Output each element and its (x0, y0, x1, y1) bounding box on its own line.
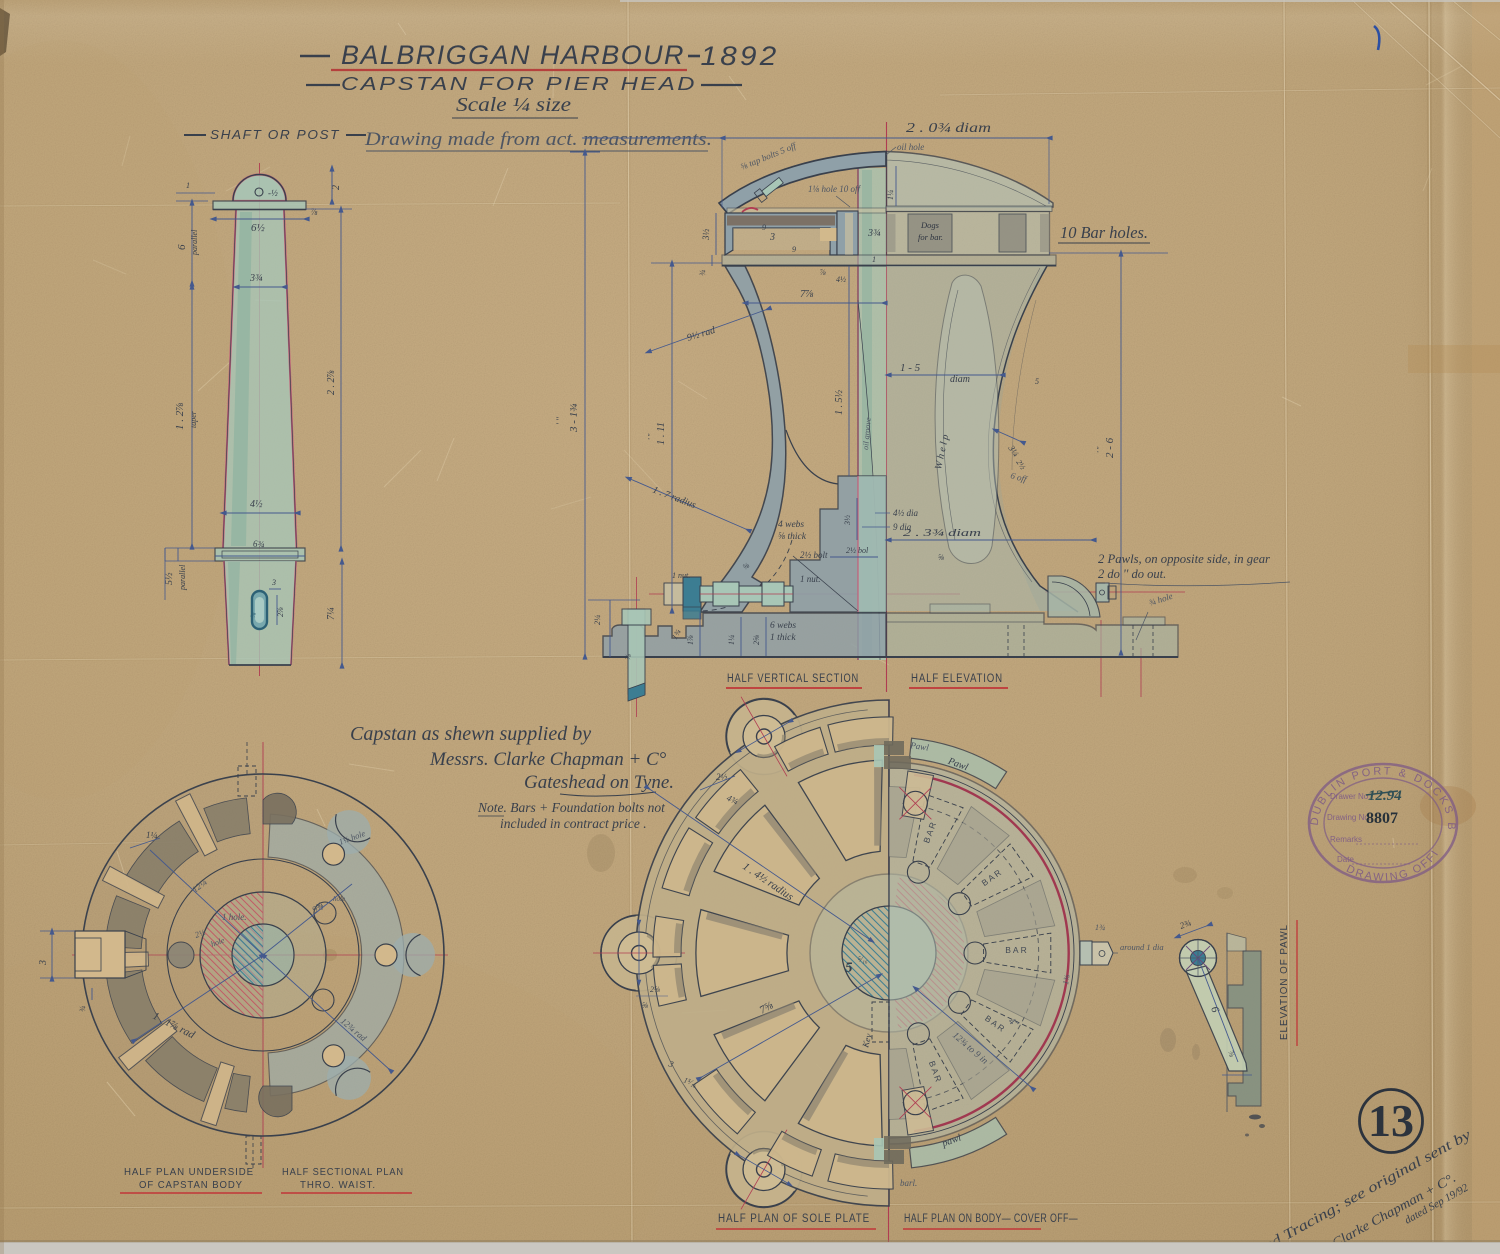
svg-text:Capstan as shewn supplied by: Capstan as shewn supplied by (350, 723, 591, 745)
svg-text:HALF VERTICAL SECTION: HALF VERTICAL SECTION (727, 673, 859, 685)
svg-text:1: 1 (872, 255, 876, 264)
svg-text:¾: ¾ (78, 1006, 87, 1012)
svg-text:1: 1 (186, 181, 190, 190)
svg-text:THRO. WAIST.: THRO. WAIST. (300, 1179, 376, 1191)
svg-text:OF CAPSTAN BODY: OF CAPSTAN BODY (139, 1179, 243, 1191)
svg-text:10 Bar holes.: 10 Bar holes. (1060, 223, 1148, 242)
svg-text:2 . 3¾ diam: 2 . 3¾ diam (903, 527, 981, 539)
svg-text:for bar.: for bar. (918, 232, 943, 242)
svg-text:Scale ¼ size: Scale ¼ size (456, 94, 571, 116)
svg-text:9: 9 (792, 245, 796, 254)
svg-text:6: 6 (176, 244, 188, 250)
svg-text:1¼: 1¼ (146, 830, 158, 840)
svg-text:3¾: 3¾ (867, 228, 881, 239)
svg-text:5½: 5½ (164, 572, 175, 585)
svg-text:8807: 8807 (1366, 810, 1398, 827)
svg-text:3: 3 (38, 960, 49, 966)
svg-text:⅞: ⅞ (311, 207, 318, 217)
svg-text:Remarks: Remarks (1330, 835, 1362, 844)
svg-text:⅝ thick: ⅝ thick (778, 532, 807, 542)
svg-text:4½: 4½ (836, 275, 846, 284)
svg-text:1 . 5½: 1 . 5½ (834, 390, 845, 416)
svg-text:around 1 dia: around 1 dia (1120, 942, 1164, 952)
svg-text:2⅞: 2⅞ (276, 607, 285, 617)
svg-text:SHAFT OR POST: SHAFT OR POST (210, 127, 340, 142)
svg-text:Dogs: Dogs (920, 220, 940, 230)
svg-text:Drawer No.: Drawer No. (1330, 792, 1370, 801)
svg-text:1⅜: 1⅜ (1061, 974, 1072, 985)
svg-text:4½: 4½ (250, 499, 263, 510)
svg-text:2½ bolt: 2½ bolt (800, 550, 828, 560)
svg-text:Date: Date (1337, 855, 1354, 864)
svg-text:4 webs: 4 webs (778, 520, 804, 530)
svg-text:2 . 2⅞: 2 . 2⅞ (326, 370, 337, 395)
svg-text:2: 2 (331, 185, 342, 190)
svg-text:1 . 11: 1 . 11 (656, 422, 667, 445)
svg-text:⅝: ⅝ (642, 1001, 648, 1010)
svg-text:oil hole: oil hole (897, 142, 924, 152)
svg-text:HALF SECTIONAL PLAN: HALF SECTIONAL PLAN (282, 1166, 404, 1178)
svg-text:1 thick: 1 thick (770, 633, 796, 643)
svg-text:4½ dia: 4½ dia (893, 508, 919, 518)
svg-text:parallel: parallel (190, 229, 199, 256)
svg-text:ELEVATION OF PAWL: ELEVATION OF PAWL (1279, 924, 1290, 1040)
svg-text:3¾: 3¾ (249, 273, 263, 284)
svg-text:⅞: ⅞ (820, 268, 826, 277)
svg-text:3: 3 (271, 578, 276, 587)
svg-text:⅝: ⅝ (938, 553, 944, 562)
svg-text:parallel: parallel (178, 564, 187, 591)
svg-text:3½: 3½ (843, 515, 852, 526)
svg-text:1 nut.: 1 nut. (672, 571, 690, 580)
svg-text:BAR: BAR (1005, 945, 1028, 955)
svg-text:2 Pawls, on opposite side, in: 2 Pawls, on opposite side, in gear (1098, 552, 1270, 566)
svg-text:hole: hole (333, 895, 345, 903)
svg-text:BALBRIGGAN HARBOUR: BALBRIGGAN HARBOUR (341, 40, 685, 70)
svg-text:7⅞: 7⅞ (800, 288, 814, 300)
svg-text:1 - 5: 1 - 5 (900, 362, 921, 374)
svg-text:2⅝: 2⅝ (650, 985, 660, 994)
svg-text:1¼: 1¼ (886, 190, 895, 200)
svg-text:-½: -½ (268, 188, 278, 198)
svg-text:1⅞: 1⅞ (686, 635, 695, 645)
svg-text:' '': ' '' (555, 416, 565, 425)
svg-text:taper: taper (189, 410, 198, 428)
svg-text:2⅝: 2⅝ (752, 635, 761, 645)
svg-text:Drawing No.: Drawing No. (1327, 813, 1371, 822)
svg-text:2¼: 2¼ (593, 615, 602, 625)
svg-text:Drawing made from act. measure: Drawing made from act. measurements. (364, 129, 712, 150)
svg-text:13: 13 (1368, 1095, 1414, 1146)
svg-text:2 do '' d: 2 do '' do out. (1098, 567, 1166, 581)
svg-text:HALF ELEVATION: HALF ELEVATION (911, 673, 1003, 685)
svg-text:1 nut.: 1 nut. (800, 574, 821, 584)
svg-text:6½: 6½ (251, 222, 265, 234)
svg-text:¾: ¾ (698, 270, 707, 276)
svg-text:1¾: 1¾ (1095, 923, 1105, 932)
svg-text:9 dia: 9 dia (893, 522, 912, 532)
svg-text:Gateshead on Tyne.: Gateshead on Tyne. (524, 772, 674, 793)
svg-text:included in contract price: included in contract price . (500, 816, 647, 831)
svg-text:2 - 6: 2 - 6 (1104, 437, 1116, 458)
svg-text:2½: 2½ (716, 772, 728, 782)
svg-text:1¼: 1¼ (727, 635, 736, 645)
svg-text:3½: 3½ (701, 229, 711, 242)
svg-text:6 webs: 6 webs (770, 621, 796, 631)
svg-text:3: 3 (769, 232, 775, 243)
svg-text:Note. Bars + Foundation bo: Note. Bars + Foundation bolts not (477, 800, 666, 815)
svg-text:6¾: 6¾ (253, 539, 265, 549)
svg-text:⁵⁄₁₆: ⁵⁄₁₆ (858, 955, 868, 964)
svg-text:2 . 0¾ diam: 2 . 0¾ diam (906, 120, 991, 135)
svg-text:1⅛ hole 10 off: 1⅛ hole 10 off (808, 184, 861, 194)
svg-text:CAPSTAN FOR PIER HEAD: CAPSTAN FOR PIER HEAD (341, 73, 697, 94)
svg-text:7¼: 7¼ (326, 607, 337, 620)
svg-text:HALF PLAN ON BODY— COVER OFF—: HALF PLAN ON BODY— COVER OFF— (904, 1213, 1078, 1225)
svg-text:' '': ' '' (1096, 446, 1104, 453)
svg-text:barl.: barl. (900, 1178, 917, 1188)
svg-text:3 - 1¾: 3 - 1¾ (568, 404, 580, 433)
svg-text:diam: diam (950, 374, 970, 385)
svg-text:' '': ' '' (647, 433, 655, 440)
svg-text:HALF PLAN UNDERSIDE: HALF PLAN UNDERSIDE (124, 1166, 254, 1178)
svg-text:5: 5 (1035, 377, 1039, 386)
svg-text:Messrs. Clarke Chapman + C: Messrs. Clarke Chapman + C° (429, 749, 667, 770)
svg-text:HALF PLAN OF SOLE PLATE: HALF PLAN OF SOLE PLATE (718, 1213, 870, 1225)
svg-text:1 . 2⅞: 1 . 2⅞ (174, 403, 186, 431)
svg-text:9: 9 (762, 223, 766, 232)
svg-text:1892: 1892 (701, 41, 780, 71)
svg-text:2½ bol: 2½ bol (846, 546, 869, 555)
svg-text:5: 5 (845, 960, 853, 976)
